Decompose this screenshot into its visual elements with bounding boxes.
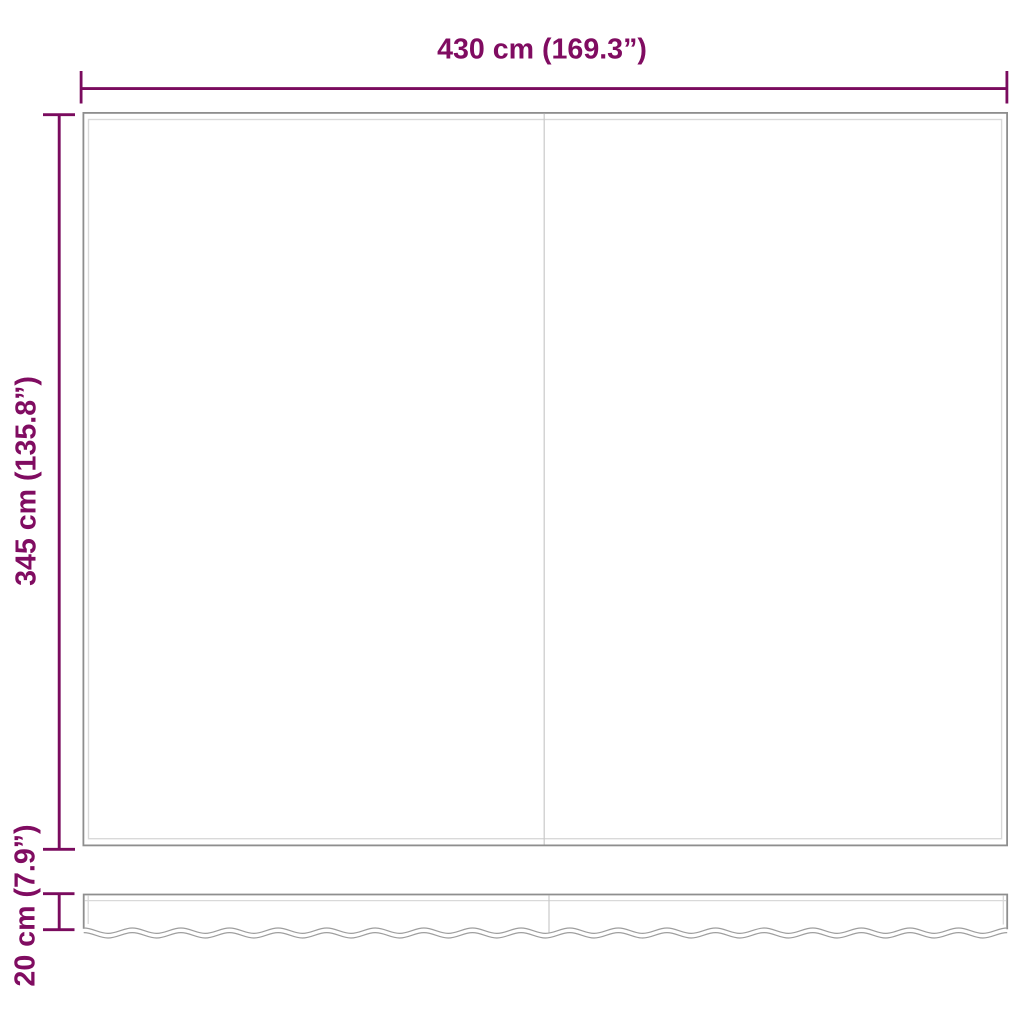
svg-text:430 cm (169.3”): 430 cm (169.3”) [437, 33, 647, 65]
svg-text:345 cm (135.8”): 345 cm (135.8”) [11, 376, 43, 586]
svg-text:20 cm (7.9”): 20 cm (7.9”) [10, 824, 42, 986]
